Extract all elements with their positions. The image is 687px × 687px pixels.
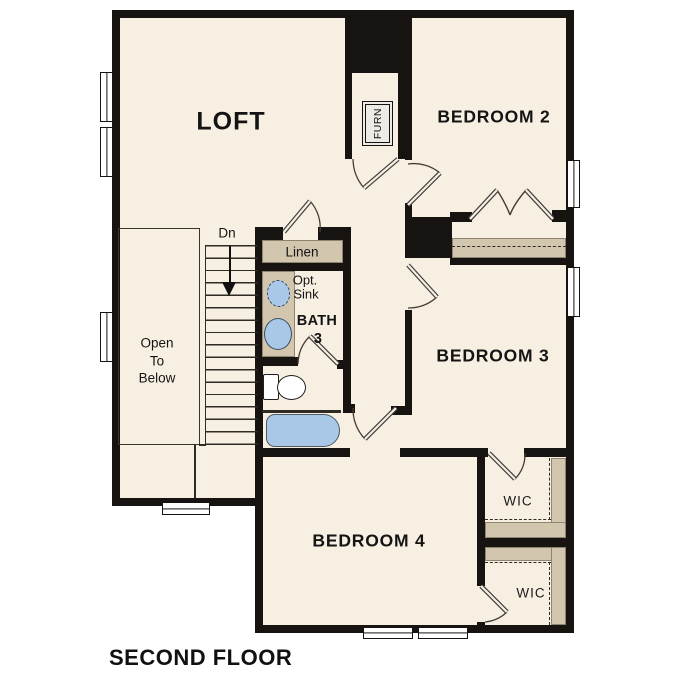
label-open-to-below-line3: Below <box>139 371 176 386</box>
label-stairs-dn: Dn <box>218 226 235 241</box>
door-furnace-closet <box>353 159 398 188</box>
door-bedroom-4 <box>353 408 396 439</box>
label-open-to-below-line2: To <box>150 354 164 369</box>
doors-overlay <box>0 0 687 687</box>
label-opt-sink-line2: Sink <box>293 287 318 302</box>
door-wic-lower <box>481 586 507 622</box>
label-open-to-below-line1: Open <box>140 336 173 351</box>
floor-plan: FURN <box>0 0 687 687</box>
door-bifold-closet <box>470 190 553 219</box>
room-label-bedroom4: BEDROOM 4 <box>312 531 425 552</box>
label-opt-sink-line1: Opt. <box>293 273 318 288</box>
room-label-wic-lower: WIC <box>516 586 545 601</box>
door-wic-upper <box>489 453 525 479</box>
room-label-wic-upper: WIC <box>503 494 532 509</box>
page-title: SECOND FLOOR <box>109 645 292 671</box>
room-label-bedroom3: BEDROOM 3 <box>436 346 549 367</box>
room-label-bath-number: 3 <box>314 331 322 347</box>
door-bedroom-2 <box>408 164 440 205</box>
door-linen-closet <box>284 201 320 232</box>
label-linen: Linen <box>285 245 318 260</box>
room-label-bath: BATH <box>297 313 337 329</box>
room-label-loft: LOFT <box>196 108 265 137</box>
room-label-bedroom2: BEDROOM 2 <box>437 107 550 128</box>
door-bedroom-3 <box>408 265 437 308</box>
